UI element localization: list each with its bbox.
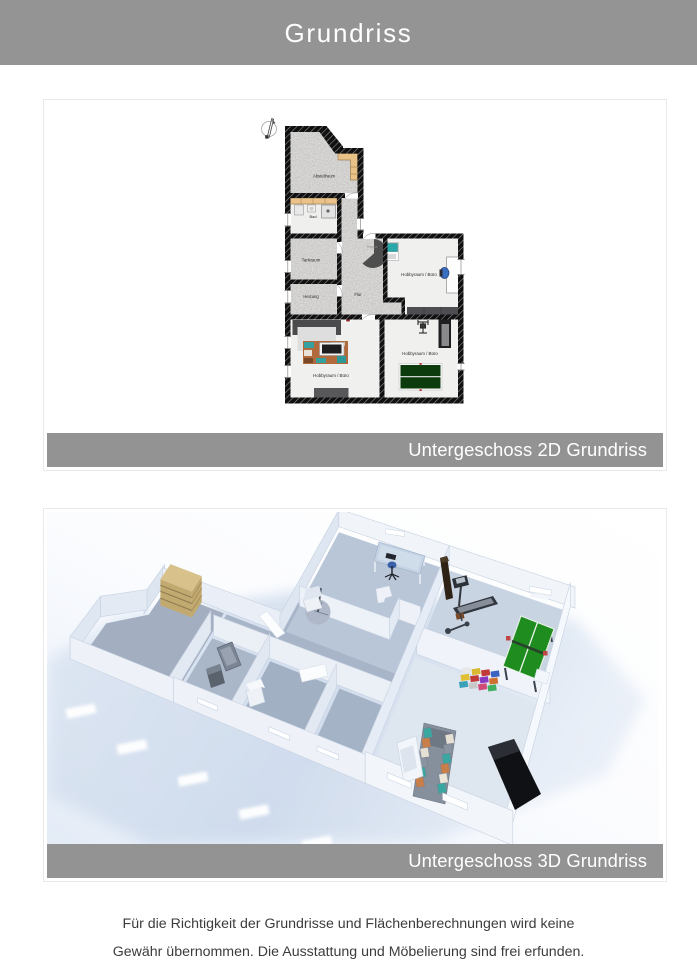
svg-text:Hobbyraum / Büro: Hobbyraum / Büro	[313, 373, 349, 378]
svg-text:Flur: Flur	[354, 292, 362, 297]
svg-text:Heizung: Heizung	[303, 294, 319, 299]
svg-text:Abstellraum: Abstellraum	[313, 174, 336, 179]
svg-text:Hobbyraum / Büro: Hobbyraum / Büro	[402, 351, 438, 356]
svg-text:Tankraum: Tankraum	[302, 258, 321, 263]
svg-text:Treppe: Treppe	[366, 245, 377, 249]
svg-text:Bad: Bad	[309, 214, 316, 219]
svg-text:Hobbyraum / Büro: Hobbyraum / Büro	[401, 272, 437, 277]
